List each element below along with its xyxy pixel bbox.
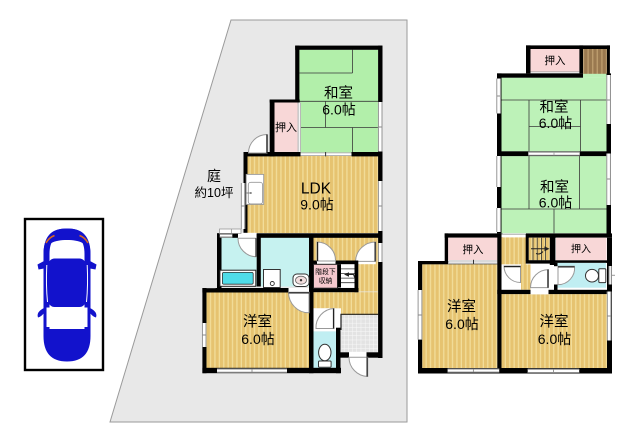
- svg-text:洋室: 洋室: [447, 299, 476, 316]
- svg-text:押入: 押入: [275, 120, 297, 134]
- svg-text:収納: 収納: [319, 276, 333, 285]
- svg-text:6.0帖: 6.0帖: [538, 331, 571, 347]
- svg-text:和室: 和室: [540, 99, 569, 116]
- svg-text:和室: 和室: [324, 85, 353, 102]
- svg-text:洋室: 洋室: [540, 314, 569, 331]
- svg-text:押入: 押入: [571, 243, 591, 256]
- svg-text:6.0帖: 6.0帖: [322, 102, 355, 118]
- svg-text:洋室: 洋室: [243, 314, 272, 331]
- svg-text:6.0帖: 6.0帖: [539, 195, 572, 211]
- svg-text:6.0帖: 6.0帖: [241, 331, 274, 347]
- svg-text:階段下: 階段下: [315, 267, 336, 276]
- svg-text:押入: 押入: [545, 54, 566, 67]
- svg-text:6.0帖: 6.0帖: [539, 115, 572, 131]
- svg-text:和室: 和室: [540, 179, 569, 196]
- svg-text:押入: 押入: [463, 243, 484, 256]
- svg-text:LDK: LDK: [301, 181, 332, 198]
- svg-text:約10坪: 約10坪: [195, 185, 234, 200]
- svg-text:9.0帖: 9.0帖: [300, 197, 333, 213]
- svg-text:庭: 庭: [207, 168, 221, 184]
- svg-text:6.0帖: 6.0帖: [445, 316, 478, 332]
